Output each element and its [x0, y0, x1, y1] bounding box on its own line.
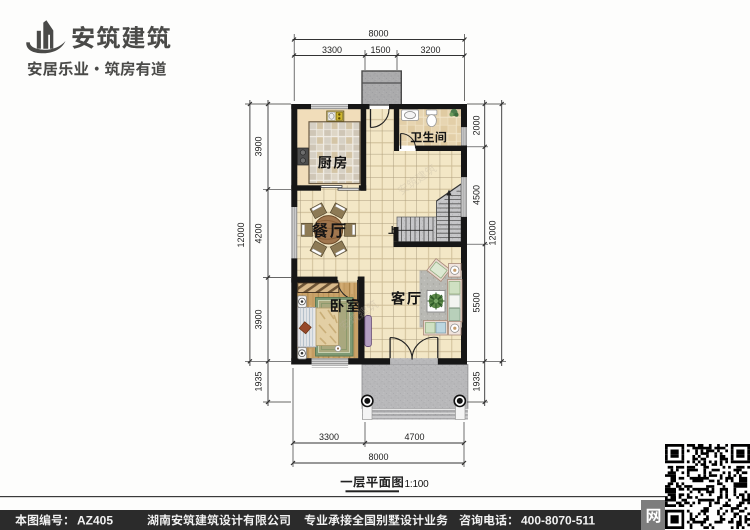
svg-text:4700: 4700	[404, 432, 424, 442]
svg-text:12000: 12000	[236, 222, 246, 247]
svg-text:3200: 3200	[420, 45, 440, 55]
svg-text:3900: 3900	[254, 136, 264, 156]
svg-text:5500: 5500	[472, 292, 482, 312]
svg-text:2000: 2000	[472, 115, 482, 135]
svg-text:12000: 12000	[488, 220, 498, 245]
svg-text:1:100: 1:100	[405, 479, 430, 490]
svg-text:1935: 1935	[472, 371, 482, 391]
svg-text:400-8070-511: 400-8070-511	[521, 514, 595, 528]
svg-text:1935: 1935	[254, 371, 264, 391]
svg-text:8000: 8000	[368, 29, 388, 39]
svg-text:8000: 8000	[368, 452, 388, 462]
svg-text:3300: 3300	[319, 432, 339, 442]
svg-text:4500: 4500	[472, 185, 482, 205]
svg-text:3300: 3300	[322, 45, 342, 55]
svg-text:1500: 1500	[370, 45, 390, 55]
svg-text:3900: 3900	[254, 309, 264, 329]
svg-text:4200: 4200	[254, 223, 264, 243]
svg-text:AZ405: AZ405	[77, 514, 113, 528]
